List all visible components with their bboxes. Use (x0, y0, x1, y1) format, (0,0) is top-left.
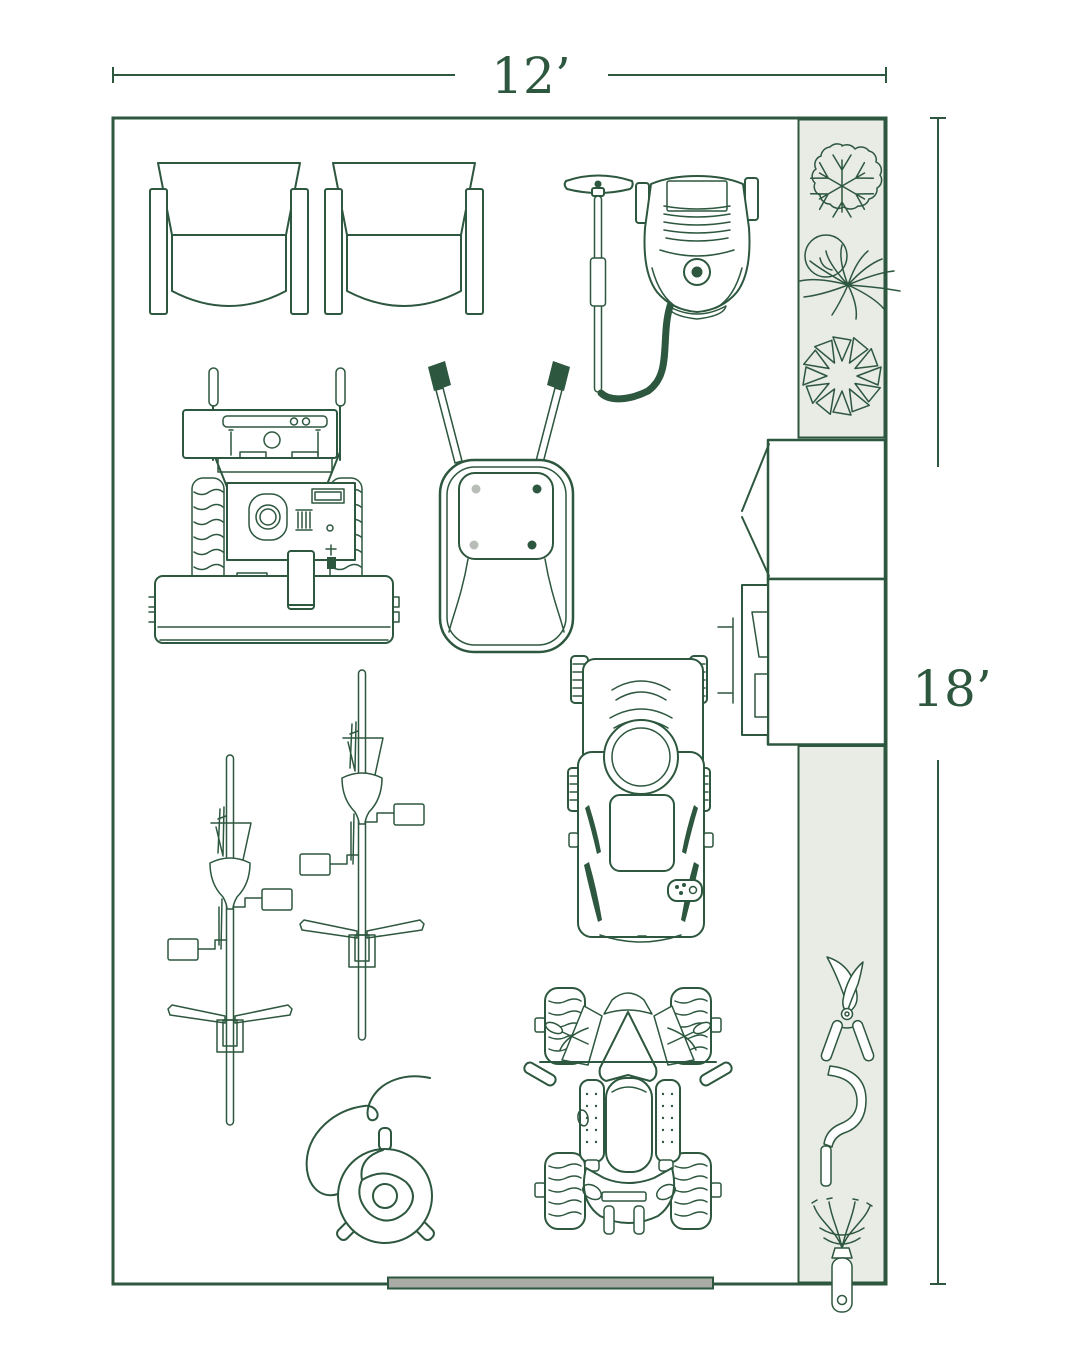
storage-cabinet-with-side-unit (718, 579, 885, 745)
width-dimension: 12’ (113, 47, 886, 105)
armchair-1 (150, 163, 308, 314)
wheelbarrow (428, 361, 573, 652)
snow-blower (149, 368, 399, 643)
garden-shed-floor-plan: 12’ 18’ (0, 0, 1080, 1350)
width-dimension-label: 12’ (491, 47, 571, 105)
storage-cabinet-open-door (742, 440, 885, 579)
push-mower (568, 656, 713, 942)
floor-plan-canvas: 12’ 18’ (0, 0, 1080, 1350)
door-threshold (388, 1278, 713, 1289)
string-trimmer-2 (300, 670, 424, 1040)
armchair-2 (325, 163, 483, 314)
height-dimension: 18’ (912, 118, 992, 1284)
pressure-washer (565, 176, 758, 399)
hose-reel (307, 1076, 436, 1243)
string-trimmer-1 (168, 755, 292, 1125)
height-dimension-label: 18’ (912, 660, 992, 718)
atv-quad (523, 988, 734, 1234)
